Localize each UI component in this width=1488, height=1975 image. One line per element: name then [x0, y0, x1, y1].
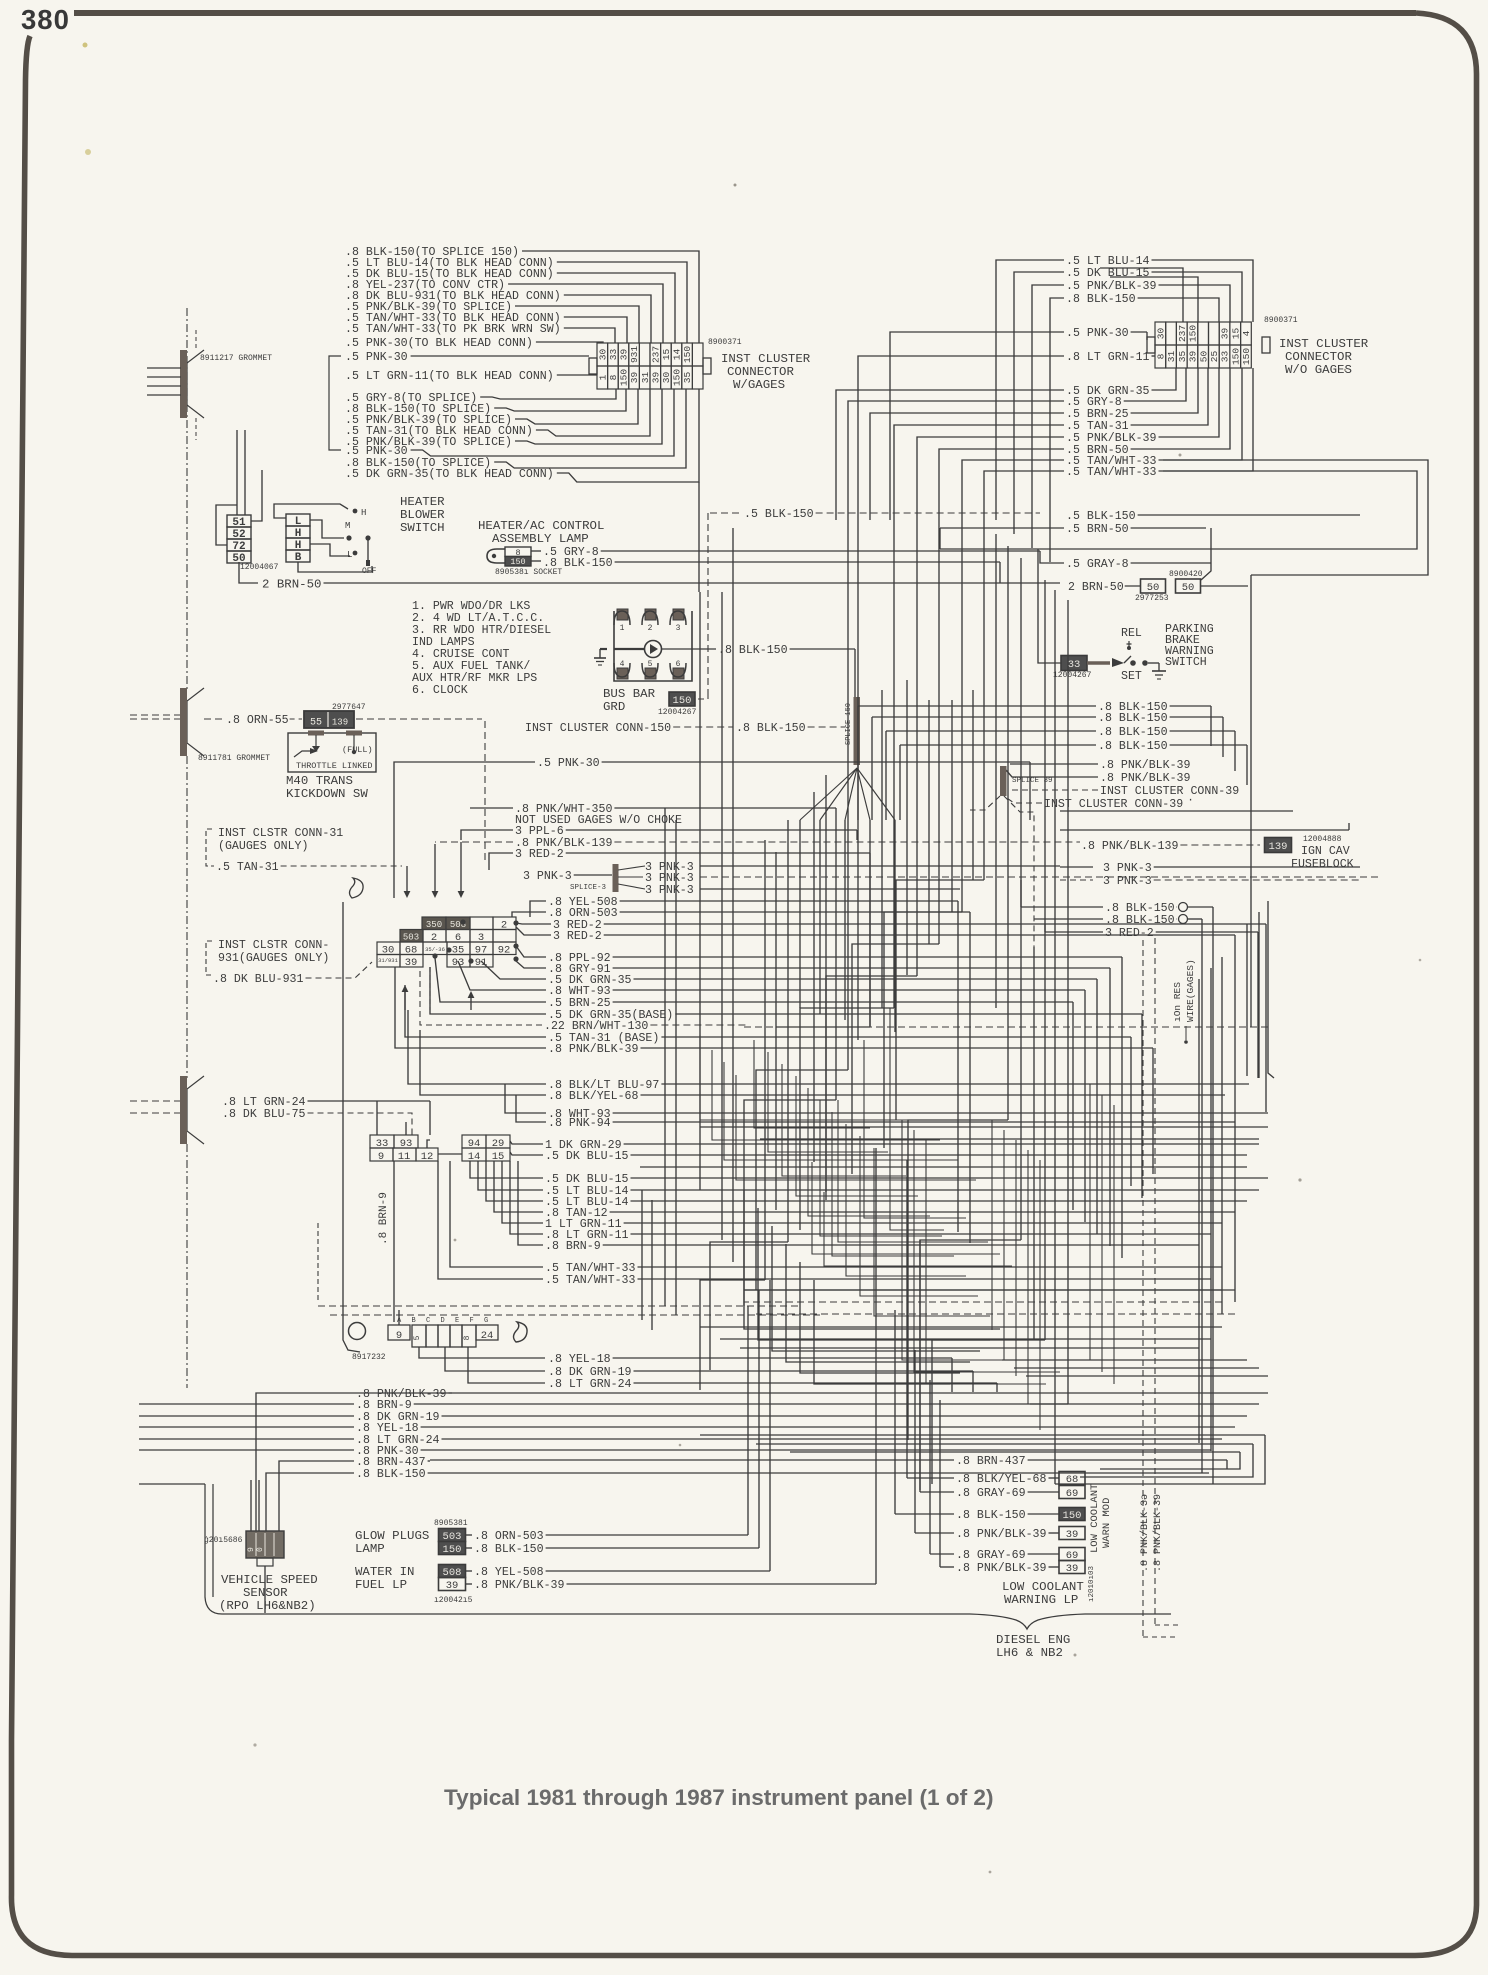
svg-text:WIRE(GAGES): WIRE(GAGES) — [1185, 959, 1196, 1022]
svg-text:SWITCH: SWITCH — [400, 521, 445, 535]
svg-text:3 PNK-3: 3 PNK-3 — [1103, 862, 1152, 875]
svg-text:150: 150 — [1241, 348, 1252, 365]
svg-text:.5 GRAY-8: .5 GRAY-8 — [1066, 558, 1129, 571]
svg-text:SWITCH: SWITCH — [1165, 656, 1207, 669]
svg-text:.8 BRN-9: .8 BRN-9 — [545, 1240, 601, 1253]
svg-text:INST CLUSTER: INST CLUSTER — [1279, 337, 1369, 351]
svg-text:.5 PNK-30(TO BLK HEAD CONN): .5 PNK-30(TO BLK HEAD CONN) — [345, 337, 533, 350]
svg-text:2: 2 — [648, 624, 653, 633]
svg-text:IGN CAV: IGN CAV — [1301, 845, 1350, 858]
svg-text:8: 8 — [463, 1335, 472, 1340]
svg-text:WARNING LP: WARNING LP — [1004, 1593, 1078, 1607]
svg-text:.8 PNK/BLK-39: .8 PNK/BLK-39 — [1100, 772, 1190, 785]
svg-text:1: 1 — [597, 374, 608, 380]
svg-text:15: 15 — [1230, 328, 1241, 340]
svg-text:.8 PNK/BLK-39: .8 PNK/BLK-39 — [1152, 1494, 1164, 1572]
svg-text:12: 12 — [421, 1151, 434, 1163]
svg-text:50: 50 — [1182, 582, 1195, 594]
svg-text:55: 55 — [310, 718, 322, 729]
svg-text:.8 ORN-55: .8 ORN-55 — [226, 714, 289, 727]
svg-text:LOW COOLANT: LOW COOLANT — [1002, 1580, 1084, 1594]
svg-text:.8 BLK-150: .8 BLK-150 — [1098, 740, 1168, 753]
svg-text:35/-36: 35/-36 — [425, 946, 445, 953]
svg-text:CONNECTOR: CONNECTOR — [1285, 350, 1352, 364]
svg-text:3 RED-2: 3 RED-2 — [553, 930, 602, 943]
svg-text:REL: REL — [1121, 627, 1142, 640]
svg-text:.8 GRAY-69: .8 GRAY-69 — [956, 1487, 1026, 1500]
svg-text:12004067: 12004067 — [240, 563, 279, 572]
svg-text:139: 139 — [1269, 841, 1288, 853]
svg-text:.5 LT GRN-11(TO BLK HEAD CONN): .5 LT GRN-11(TO BLK HEAD CONN) — [345, 370, 554, 383]
svg-text:2977253: 2977253 — [1135, 594, 1169, 603]
svg-text:L: L — [347, 550, 352, 560]
svg-text:.5 TAN/WHT-33: .5 TAN/WHT-33 — [545, 1274, 635, 1287]
svg-text:FUSEBLOCK: FUSEBLOCK — [1291, 858, 1354, 871]
svg-text:KICKDOWN SW: KICKDOWN SW — [286, 787, 368, 801]
svg-text:.8 BLK-150: .8 BLK-150 — [474, 1543, 544, 1556]
svg-text:.8 DK BLU-75: .8 DK BLU-75 — [222, 1108, 306, 1121]
svg-text:24: 24 — [481, 1330, 494, 1342]
svg-text:ı20042ı5: ı20042ı5 — [434, 1596, 473, 1605]
svg-text:503: 503 — [403, 933, 419, 943]
svg-text:.8 BLK-150: .8 BLK-150 — [1105, 914, 1175, 927]
svg-text:4: 4 — [620, 660, 625, 669]
svg-text:35: 35 — [1177, 351, 1188, 363]
svg-text:3 PNK-3: 3 PNK-3 — [523, 870, 572, 883]
svg-text:5: 5 — [413, 1335, 422, 1340]
svg-text:69: 69 — [1066, 1488, 1079, 1500]
svg-text:.8 PNK/BLK-39: .8 PNK/BLK-39 — [956, 1528, 1046, 1541]
svg-text:.8 BLK-150: .8 BLK-150 — [356, 1468, 426, 1481]
svg-text:12004888: 12004888 — [1303, 835, 1342, 844]
svg-text:8911781 GROMMET: 8911781 GROMMET — [198, 754, 270, 763]
svg-text:.8 BLK-150: .8 BLK-150 — [1098, 726, 1168, 739]
svg-text:.5 TAN-31: .5 TAN-31 — [216, 861, 279, 874]
svg-text:150: 150 — [672, 369, 683, 386]
svg-text:9: 9 — [396, 1330, 402, 1342]
svg-text:39: 39 — [1066, 1529, 1079, 1541]
svg-text:F: F — [470, 1317, 474, 1325]
svg-text:39: 39 — [1220, 328, 1231, 340]
svg-text:12004267: 12004267 — [658, 708, 697, 717]
svg-text:INST CLSTR CONN-31: INST CLSTR CONN-31 — [218, 827, 343, 840]
svg-text:.8 BRN-437: .8 BRN-437 — [956, 1455, 1026, 1468]
svg-text:.8 PNK/BLK-3ə: .8 PNK/BLK-3ə — [1139, 1494, 1151, 1572]
svg-text:THROTTLE LINKED: THROTTLE LINKED — [296, 761, 373, 771]
svg-text:.8 PNK/BLK-39: .8 PNK/BLK-39 — [548, 1043, 638, 1056]
svg-text:.5 DK BLU-15: .5 DK BLU-15 — [1066, 267, 1150, 280]
svg-text:150: 150 — [443, 1544, 462, 1556]
svg-text:92: 92 — [498, 945, 511, 957]
svg-text:FUEL LP: FUEL LP — [355, 1578, 407, 1592]
svg-text:6. CLOCK: 6. CLOCK — [412, 684, 468, 697]
svg-text:.5 BLK-150: .5 BLK-150 — [744, 508, 814, 521]
svg-text:39: 39 — [446, 1580, 459, 1592]
svg-text:.8 PNK/BLK-139: .8 PNK/BLK-139 — [1081, 840, 1178, 853]
svg-text:.5 PNK/BLK-39: .5 PNK/BLK-39 — [1066, 280, 1156, 293]
svg-text:8900371: 8900371 — [1264, 316, 1298, 325]
svg-text:8917232: 8917232 — [352, 1353, 386, 1362]
svg-text:M40 TRANS: M40 TRANS — [286, 774, 353, 788]
svg-text:31: 31 — [1166, 351, 1177, 363]
svg-text:.5 DK GRN-35(TO BLK HEAD CONN): .5 DK GRN-35(TO BLK HEAD CONN) — [345, 468, 554, 481]
svg-text:35: 35 — [682, 372, 693, 384]
svg-text:GLOW PLUGS: GLOW PLUGS — [355, 1529, 429, 1543]
svg-text:INST CLSTR CONN-: INST CLSTR CONN- — [218, 939, 329, 952]
svg-text:.5 TAN/WHT-33(TO PK BRK WRN SW: .5 TAN/WHT-33(TO PK BRK WRN SW) — [345, 323, 561, 336]
svg-text:2 BRN-50: 2 BRN-50 — [1068, 581, 1124, 594]
svg-text:.8 YEL-508: .8 YEL-508 — [474, 1566, 544, 1579]
svg-text:31/931: 31/931 — [378, 957, 399, 964]
svg-text:931: 931 — [629, 346, 640, 363]
svg-text:(GAUGES ONLY): (GAUGES ONLY) — [218, 840, 308, 853]
svg-text:33: 33 — [1068, 659, 1081, 671]
svg-text:HEATER: HEATER — [400, 495, 445, 509]
svg-text:33: 33 — [1220, 351, 1231, 363]
svg-text:(RPO LH6&NB2): (RPO LH6&NB2) — [219, 1599, 316, 1613]
svg-text:8900420: 8900420 — [1169, 570, 1203, 579]
svg-text:Typical 1981 through 1987 inst: Typical 1981 through 1987 instrument pan… — [444, 1785, 994, 1810]
svg-text:BUS BAR: BUS BAR — [603, 687, 656, 701]
svg-text:150: 150 — [1230, 348, 1241, 365]
svg-text:380: 380 — [21, 4, 70, 35]
svg-text:.8 BLK-150: .8 BLK-150 — [1098, 712, 1168, 725]
svg-text:.8 BRN-9: .8 BRN-9 — [378, 1192, 390, 1245]
svg-text:(FULL): (FULL) — [342, 745, 373, 755]
svg-text:.8 BLK/YEL-68: .8 BLK/YEL-68 — [956, 1473, 1046, 1486]
svg-text:.5 BLK-150: .5 BLK-150 — [1066, 510, 1136, 523]
svg-text:.8 LT GRN-11: .8 LT GRN-11 — [1066, 351, 1150, 364]
svg-text:5: 5 — [648, 660, 653, 669]
svg-text:.8 BLK-150: .8 BLK-150 — [736, 722, 806, 735]
svg-text:39: 39 — [1066, 1563, 1079, 1575]
svg-text:150: 150 — [510, 557, 525, 567]
svg-text:237: 237 — [1177, 325, 1188, 342]
svg-text:39: 39 — [405, 957, 418, 969]
svg-text:8905381: 8905381 — [434, 1519, 468, 1528]
svg-text:9: 9 — [247, 1547, 256, 1552]
svg-text:.8 BLK-150: .8 BLK-150 — [956, 1509, 1026, 1522]
svg-text:.5 DK BLU-15: .5 DK BLU-15 — [545, 1150, 629, 1163]
svg-text:3 RED-2: 3 RED-2 — [1105, 927, 1154, 940]
svg-text:6: 6 — [676, 660, 681, 669]
svg-text:3: 3 — [676, 624, 681, 633]
svg-text:ıOn RES: ıOn RES — [1172, 982, 1183, 1022]
svg-text:SPLICE-3: SPLICE-3 — [570, 884, 607, 892]
svg-text:150: 150 — [1063, 1510, 1082, 1522]
svg-text:.5 TAN/WHT-33: .5 TAN/WHT-33 — [1066, 466, 1156, 479]
svg-text:LOW COOLANT: LOW COOLANT — [1089, 1484, 1101, 1553]
svg-text:4: 4 — [1241, 330, 1252, 336]
svg-text:.5 PNK-30: .5 PNK-30 — [1066, 327, 1129, 340]
svg-text:91: 91 — [475, 957, 488, 969]
svg-text:SPLICE 39: SPLICE 39 — [1012, 777, 1053, 785]
svg-text:INST CLUSTER CONN-39: INST CLUSTER CONN-39 — [1100, 785, 1239, 798]
svg-text:931(GAUGES ONLY): 931(GAUGES ONLY) — [218, 952, 329, 965]
svg-text:150: 150 — [673, 695, 692, 707]
svg-text:WARN MOD: WARN MOD — [1101, 1498, 1113, 1548]
svg-text:3 PNK-3: 3 PNK-3 — [645, 884, 694, 897]
svg-text:11: 11 — [398, 1151, 411, 1163]
svg-text:BLOWER: BLOWER — [400, 508, 445, 522]
svg-text:WATER IN: WATER IN — [355, 1565, 415, 1579]
svg-text:DIESEL ENG: DIESEL ENG — [996, 1633, 1070, 1647]
svg-text:CONNECTOR: CONNECTOR — [727, 365, 794, 379]
svg-text:INST CLUSTER CONN-39: INST CLUSTER CONN-39 — [1044, 798, 1183, 811]
svg-text:INST CLUSTER: INST CLUSTER — [721, 352, 811, 366]
svg-text:ASSEMBLY LAMP: ASSEMBLY LAMP — [492, 532, 589, 546]
svg-text:.8 PNK-94: .8 PNK-94 — [548, 1117, 611, 1130]
svg-text:93: 93 — [452, 957, 465, 969]
svg-text:·: · — [1187, 795, 1194, 807]
svg-text:W/O GAGES: W/O GAGES — [1285, 363, 1352, 377]
svg-text:31: 31 — [640, 372, 651, 384]
svg-text:39: 39 — [629, 372, 640, 384]
svg-text:39: 39 — [1188, 351, 1199, 363]
svg-text:9: 9 — [378, 1151, 384, 1163]
svg-text:50: 50 — [1147, 582, 1160, 594]
svg-text:GRD: GRD — [603, 700, 625, 714]
svg-text:C: C — [426, 1317, 430, 1325]
svg-text:G: G — [484, 1317, 488, 1325]
svg-text:15: 15 — [661, 349, 672, 361]
svg-text:2 BRN-50: 2 BRN-50 — [262, 578, 322, 592]
svg-text:139: 139 — [332, 718, 348, 728]
svg-text:8: 8 — [1156, 353, 1167, 359]
svg-text:HEATER/AC CONTROL: HEATER/AC CONTROL — [478, 519, 604, 533]
svg-text:ı2010ı03: ı2010ı03 — [1088, 1565, 1096, 1602]
svg-text:68: 68 — [1066, 1474, 1079, 1486]
svg-text:.5 PNK-30: .5 PNK-30 — [345, 351, 408, 364]
svg-text:LAMP: LAMP — [355, 1542, 385, 1556]
svg-text:W/GAGES: W/GAGES — [733, 378, 785, 392]
svg-text:33: 33 — [608, 349, 619, 361]
svg-text:.8 DK BLU-931: .8 DK BLU-931 — [213, 973, 303, 986]
svg-text:LH6 & NB2: LH6 & NB2 — [996, 1646, 1063, 1660]
svg-text:237: 237 — [650, 346, 661, 363]
svg-text:.8 YEL-18: .8 YEL-18 — [548, 1353, 611, 1366]
svg-text:350: 350 — [426, 920, 442, 930]
svg-text:30: 30 — [597, 349, 608, 361]
svg-text:25: 25 — [1209, 351, 1220, 363]
svg-text:.8 ORN-503: .8 ORN-503 — [474, 1530, 544, 1543]
svg-text:B: B — [412, 1317, 416, 1325]
svg-text:.5 PNK-30: .5 PNK-30 — [537, 757, 600, 770]
svg-text:8900371: 8900371 — [708, 338, 742, 347]
svg-text:.8 LT GRN-24: .8 LT GRN-24 — [548, 1378, 632, 1391]
svg-text:8911217 GROMMET: 8911217 GROMMET — [200, 354, 272, 363]
svg-text:.8 PNK/BLK-39: .8 PNK/BLK-39 — [474, 1579, 564, 1592]
svg-text:3 PNK-3: 3 PNK-3 — [1103, 875, 1152, 888]
svg-text:0: 0 — [256, 1547, 265, 1552]
svg-text:150: 150 — [619, 369, 630, 386]
svg-text:.8 BLK/YEL-68: .8 BLK/YEL-68 — [548, 1090, 638, 1103]
svg-text:.8 PNK/BLK-39: .8 PNK/BLK-39 — [956, 1562, 1046, 1575]
svg-text:VEHICLE SPEED: VEHICLE SPEED — [221, 1573, 318, 1587]
svg-text:1: 1 — [620, 624, 625, 633]
svg-text:.8 BLK-150: .8 BLK-150 — [543, 557, 613, 570]
svg-text:H: H — [361, 508, 366, 518]
svg-text:50: 50 — [1198, 351, 1209, 363]
svg-text:150: 150 — [682, 346, 693, 363]
svg-text:150: 150 — [1188, 325, 1199, 342]
svg-text:8: 8 — [608, 374, 619, 380]
svg-text:30: 30 — [1156, 328, 1167, 340]
svg-text:ġ20ı5686: ġ20ı5686 — [204, 1536, 243, 1545]
svg-text:.8 BLK-150: .8 BLK-150 — [1066, 293, 1136, 306]
svg-text:INST CLUSTER CONN-150: INST CLUSTER CONN-150 — [525, 722, 671, 735]
svg-text:.5 BRN-50: .5 BRN-50 — [1066, 523, 1129, 536]
svg-text:E: E — [455, 1317, 459, 1325]
svg-text:M: M — [345, 521, 350, 531]
svg-text:3 RED-2: 3 RED-2 — [515, 848, 564, 861]
svg-text:39: 39 — [650, 372, 661, 384]
svg-text:.8 PNK/BLK-39: .8 PNK/BLK-39 — [1100, 759, 1190, 772]
svg-text:.8 GRAY-69: .8 GRAY-69 — [956, 1549, 1026, 1562]
svg-text:30: 30 — [661, 372, 672, 384]
svg-text:.8 BLK-150: .8 BLK-150 — [718, 644, 788, 657]
svg-text:SPLICE 150: SPLICE 150 — [845, 703, 853, 745]
svg-text:14: 14 — [672, 349, 683, 361]
svg-text:12004267: 12004267 — [1053, 671, 1092, 680]
svg-text:D: D — [441, 1317, 445, 1325]
svg-text:SET: SET — [1121, 670, 1142, 683]
svg-text:39: 39 — [619, 349, 630, 361]
